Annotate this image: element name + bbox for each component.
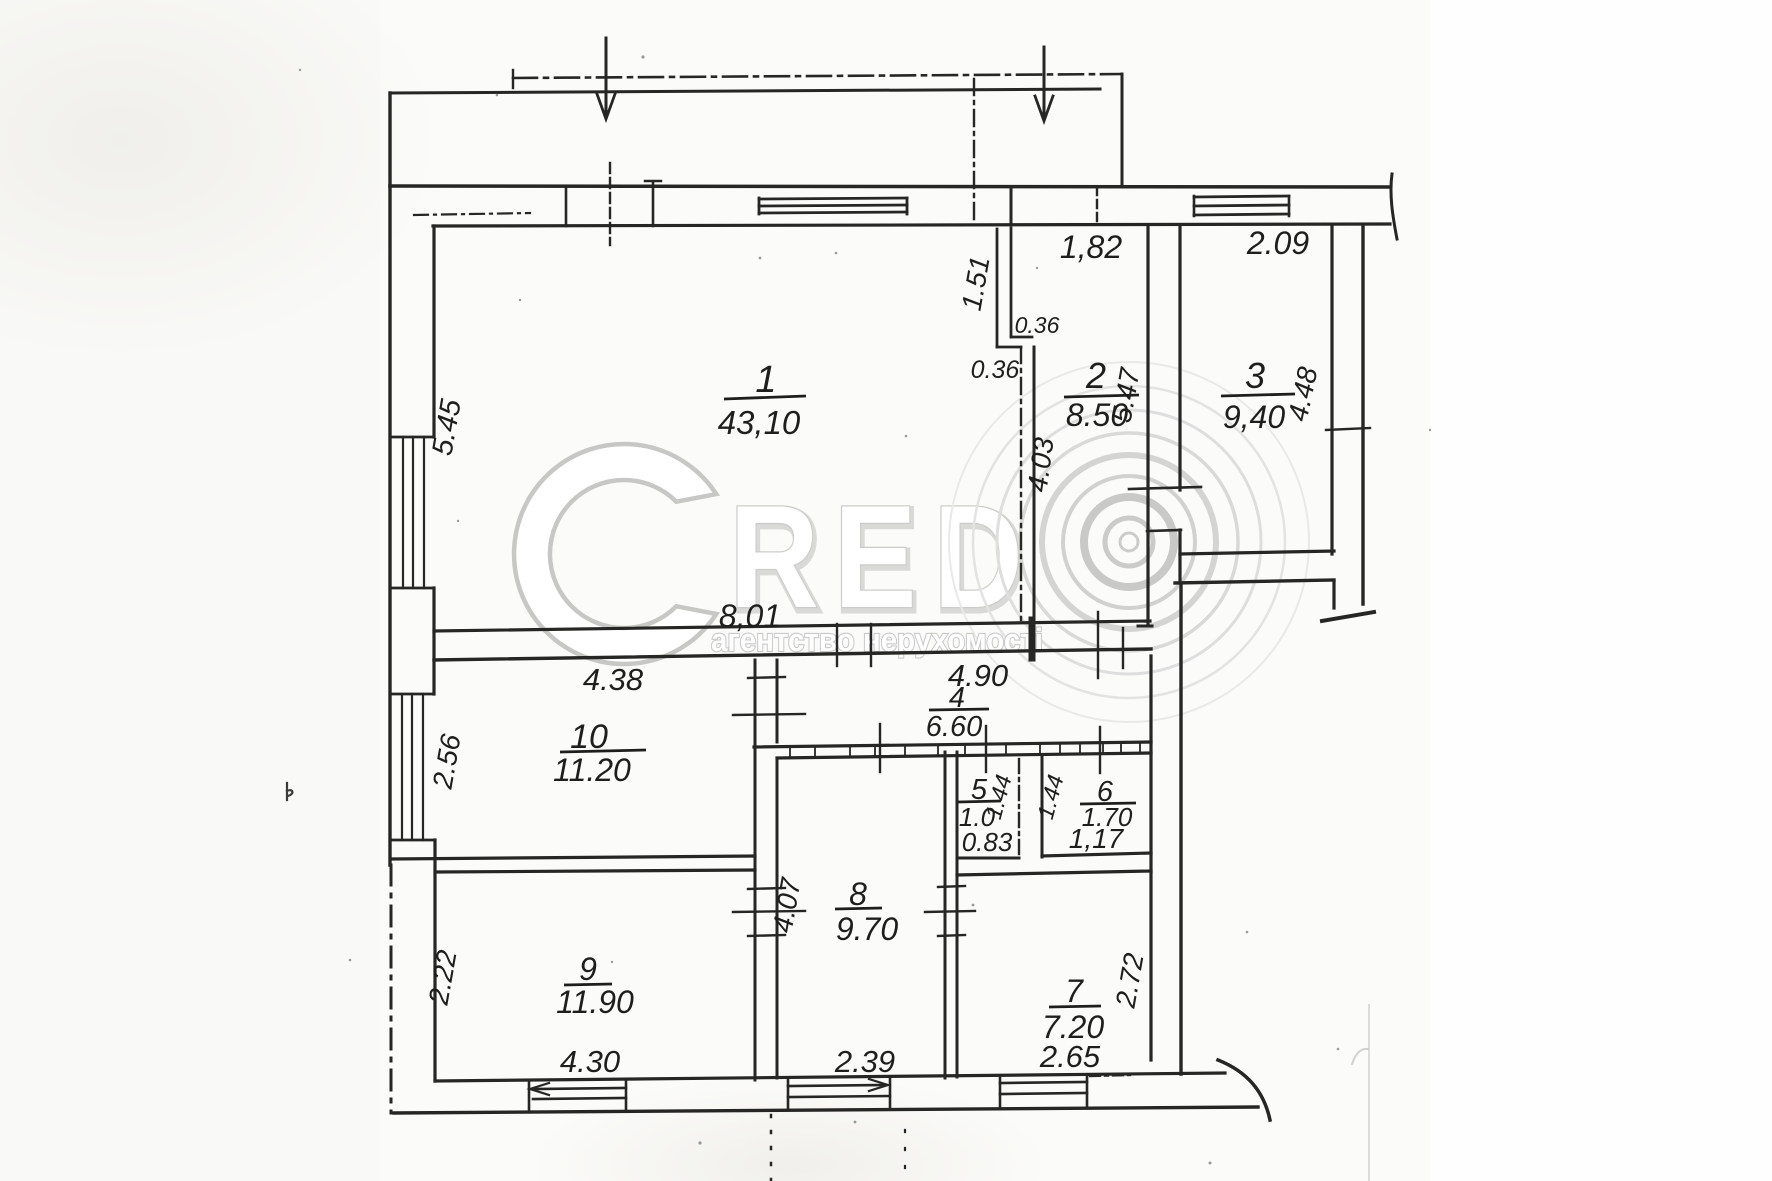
svg-text:11.90: 11.90: [556, 984, 634, 1020]
svg-text:2.09: 2.09: [1246, 225, 1309, 261]
svg-text:E: E: [834, 474, 917, 638]
svg-text:4.38: 4.38: [583, 662, 644, 697]
svg-text:9: 9: [579, 951, 597, 987]
svg-text:2: 2: [1085, 355, 1106, 396]
svg-text:6.60: 6.60: [926, 711, 982, 743]
svg-text:9,40: 9,40: [1223, 399, 1285, 435]
svg-text:0.83: 0.83: [962, 827, 1013, 857]
svg-text:2.39: 2.39: [834, 1044, 895, 1079]
svg-text:0.36: 0.36: [971, 356, 1020, 384]
svg-text:1,82: 1,82: [1060, 229, 1122, 265]
svg-text:11.20: 11.20: [553, 752, 631, 788]
svg-text:9.70: 9.70: [836, 911, 898, 947]
svg-text:8,01: 8,01: [719, 598, 781, 634]
svg-text:1,17: 1,17: [1069, 823, 1125, 854]
svg-text:8: 8: [849, 876, 867, 912]
svg-text:4.30: 4.30: [560, 1044, 620, 1079]
svg-text:0.36: 0.36: [1015, 312, 1060, 338]
svg-text:1: 1: [755, 359, 776, 401]
svg-text:7: 7: [1065, 973, 1084, 1009]
svg-text:2.65: 2.65: [1039, 1039, 1101, 1074]
svg-text:43,10: 43,10: [718, 404, 801, 441]
svg-text:3: 3: [1245, 355, 1265, 396]
